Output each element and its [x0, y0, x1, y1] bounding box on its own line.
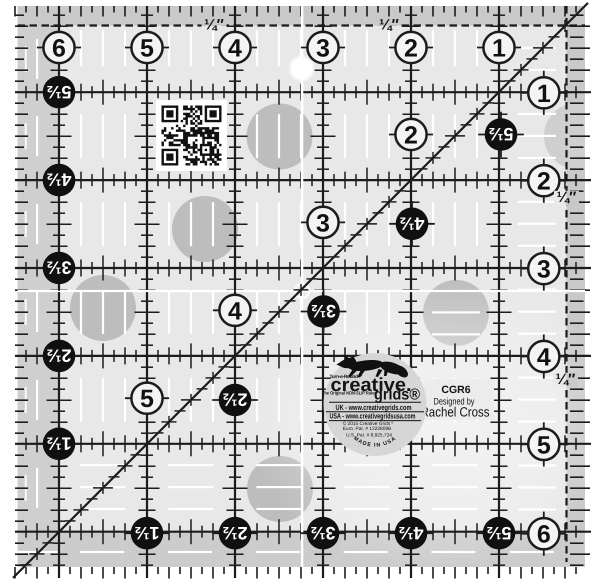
- svg-text:3½: 3½: [311, 301, 336, 321]
- svg-text:grids®: grids®: [374, 387, 420, 404]
- svg-text:3: 3: [537, 256, 551, 284]
- svg-text:1: 1: [492, 35, 506, 63]
- svg-text:5½: 5½: [46, 82, 71, 102]
- svg-text:2: 2: [404, 35, 418, 63]
- svg-text:USA - www.creativegridsusa.com: USA - www.creativegridsusa.com: [330, 412, 416, 421]
- svg-text:4: 4: [228, 35, 242, 63]
- svg-text:¼″: ¼″: [204, 17, 224, 34]
- svg-text:¼″: ¼″: [379, 17, 399, 34]
- svg-text:4: 4: [228, 297, 242, 325]
- svg-text:¼″: ¼″: [556, 371, 576, 388]
- svg-text:1: 1: [537, 80, 551, 108]
- svg-text:Rachel Cross: Rachel Cross: [421, 405, 490, 420]
- svg-text:5½: 5½: [486, 523, 511, 543]
- svg-text:4: 4: [537, 344, 551, 372]
- svg-text:5: 5: [140, 385, 154, 413]
- svg-text:3: 3: [316, 35, 330, 63]
- svg-text:4½: 4½: [46, 170, 71, 190]
- svg-text:© 2015 Creative Grids º: © 2015 Creative Grids º: [343, 421, 394, 427]
- svg-text:2½: 2½: [222, 390, 247, 410]
- svg-text:The Original NON-SLIP Ruler: The Original NON-SLIP Ruler: [322, 391, 376, 396]
- svg-text:U.S. Pat. # 8,925,724: U.S. Pat. # 8,925,724: [346, 433, 392, 439]
- svg-text:2: 2: [404, 122, 418, 150]
- svg-text:UK - www.creativegrids.com: UK - www.creativegrids.com: [336, 403, 412, 412]
- svg-text:5: 5: [140, 35, 154, 63]
- svg-text:4½: 4½: [398, 523, 423, 543]
- svg-text:1½: 1½: [46, 433, 71, 453]
- svg-text:5½: 5½: [488, 124, 513, 144]
- svg-text:2½: 2½: [222, 523, 247, 543]
- svg-text:CGR6: CGR6: [441, 384, 470, 396]
- svg-text:3½: 3½: [310, 523, 335, 543]
- svg-text:¼″: ¼″: [557, 189, 577, 206]
- svg-text:6: 6: [52, 35, 66, 63]
- svg-text:4½: 4½: [399, 213, 424, 233]
- svg-text:Euro. Pat. # 1322809B: Euro. Pat. # 1322809B: [343, 426, 392, 432]
- svg-text:2: 2: [537, 168, 551, 196]
- svg-text:2½: 2½: [46, 346, 71, 366]
- svg-text:5: 5: [537, 431, 551, 459]
- svg-text:6: 6: [537, 521, 551, 549]
- svg-text:3: 3: [316, 209, 330, 237]
- svg-text:1½: 1½: [134, 523, 159, 543]
- svg-text:3½: 3½: [46, 258, 71, 278]
